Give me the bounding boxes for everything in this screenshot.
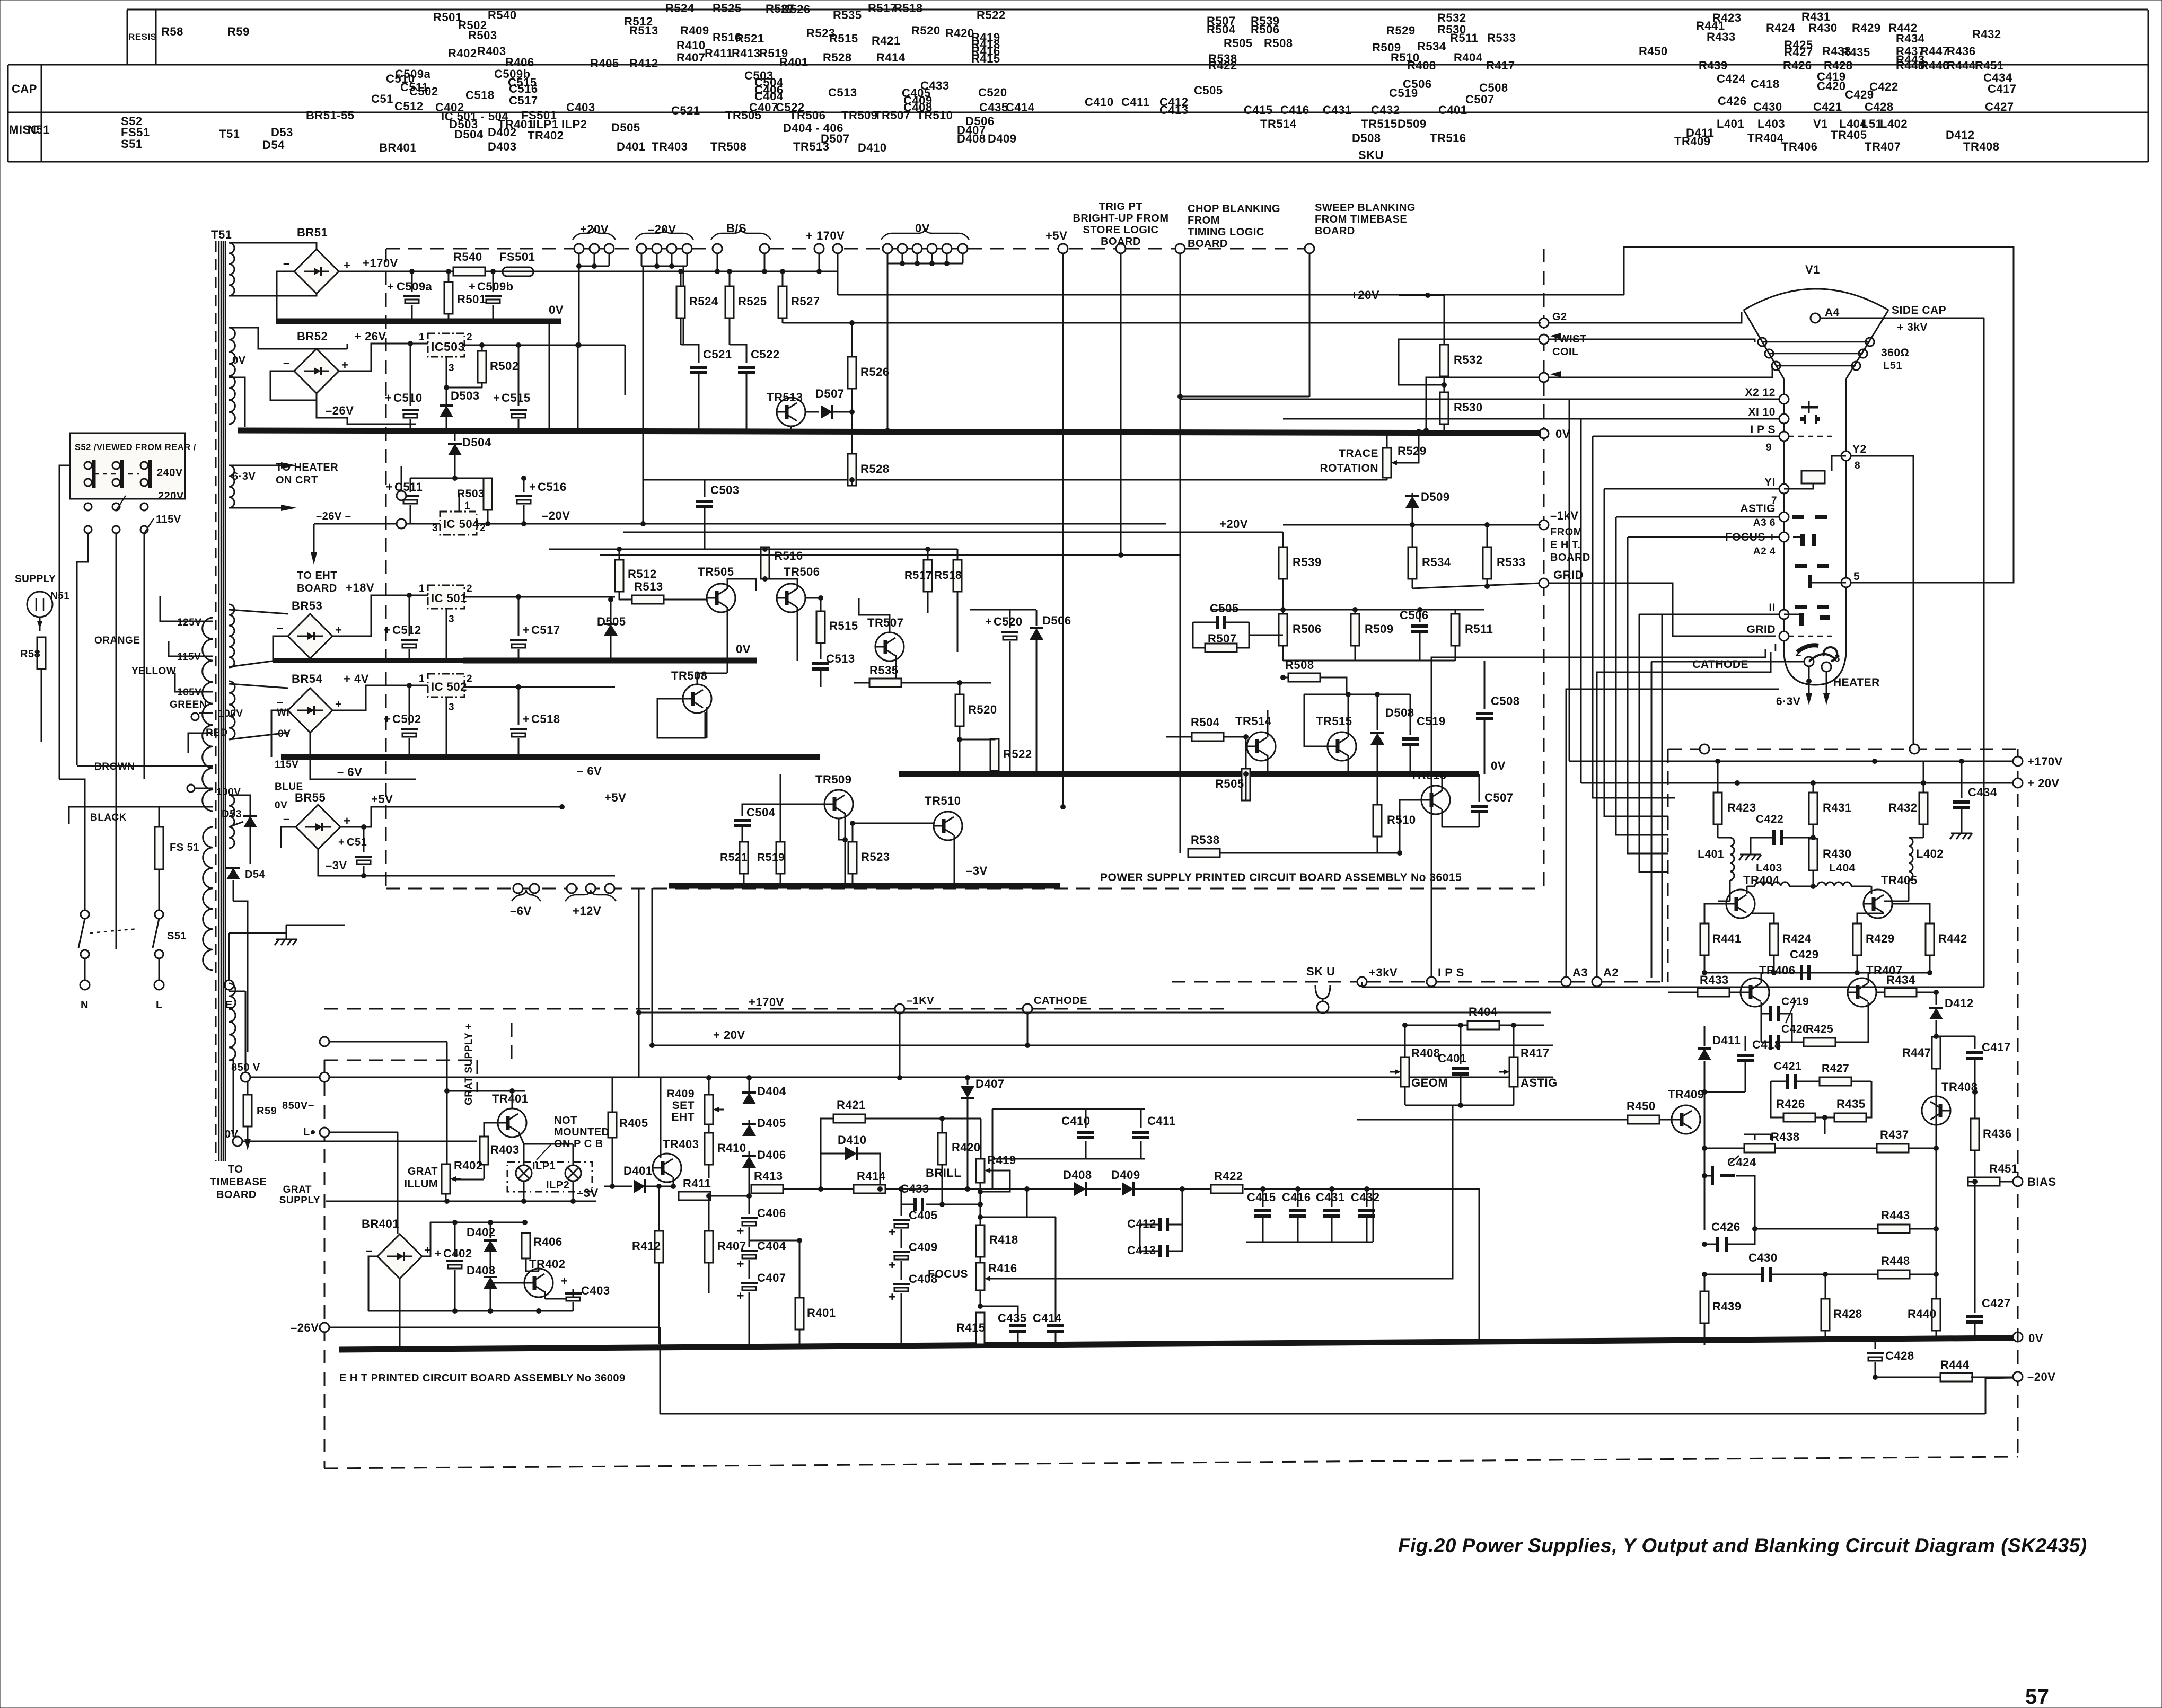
svg-text:BIAS: BIAS — [2027, 1175, 2056, 1188]
svg-text:L401: L401 — [1698, 848, 1724, 860]
svg-text:–20V: –20V — [542, 509, 570, 522]
svg-text:–3V: –3V — [577, 1186, 599, 1200]
svg-text:TR409: TR409 — [1674, 135, 1711, 148]
svg-text:+: + — [523, 623, 530, 637]
svg-text:–6V: –6V — [510, 904, 532, 918]
svg-text:ORANGE: ORANGE — [94, 635, 140, 646]
svg-text:R518: R518 — [934, 569, 962, 582]
svg-text:C416: C416 — [1280, 103, 1309, 117]
svg-text:R535: R535 — [833, 8, 862, 22]
svg-text:C413: C413 — [1159, 103, 1189, 117]
svg-text:C517: C517 — [531, 623, 560, 637]
svg-text:R436: R436 — [1983, 1127, 2012, 1140]
svg-text:I P S: I P S — [1750, 424, 1776, 436]
svg-text:C51: C51 — [347, 837, 367, 848]
svg-text:+: + — [341, 358, 348, 372]
svg-text:TR506: TR506 — [784, 565, 820, 578]
svg-text:R540: R540 — [453, 250, 482, 263]
svg-text:CATHODE: CATHODE — [1034, 995, 1087, 1007]
svg-text:C421: C421 — [1774, 1060, 1801, 1072]
svg-text:R529: R529 — [1386, 24, 1416, 37]
svg-text:R408: R408 — [1407, 59, 1436, 72]
svg-text:R448: R448 — [1881, 1254, 1910, 1267]
svg-text:R444: R444 — [1947, 59, 1976, 72]
svg-text:C502: C502 — [392, 712, 421, 726]
svg-text:ILP2: ILP2 — [561, 118, 587, 131]
svg-text:+: + — [737, 1257, 744, 1271]
svg-text:D54: D54 — [245, 869, 266, 881]
svg-text:+: + — [985, 615, 992, 628]
svg-text:R411: R411 — [705, 47, 733, 60]
svg-text:R504: R504 — [1191, 716, 1220, 729]
svg-text:0V: 0V — [1491, 759, 1506, 772]
svg-text:R451: R451 — [1975, 59, 2004, 72]
svg-text:R429: R429 — [1866, 932, 1895, 945]
svg-text:+20V: +20V — [580, 223, 609, 236]
svg-text:C431: C431 — [1316, 1191, 1345, 1204]
svg-text:R528: R528 — [860, 462, 890, 476]
svg-text:220V: 220V — [158, 490, 184, 502]
svg-text:–1kV: –1kV — [1550, 509, 1578, 522]
svg-text:R434: R434 — [1896, 32, 1925, 45]
svg-text:D505: D505 — [611, 121, 640, 134]
svg-text:R526: R526 — [781, 3, 811, 16]
svg-text:360Ω: 360Ω — [1881, 347, 1909, 359]
svg-text:D412: D412 — [1945, 997, 1974, 1010]
svg-text:R525: R525 — [738, 295, 767, 308]
svg-text:BOARD: BOARD — [216, 1189, 257, 1201]
svg-text:R403: R403 — [490, 1143, 520, 1156]
svg-text:C427: C427 — [1985, 100, 2014, 113]
svg-text:C504: C504 — [746, 806, 776, 819]
svg-text:R447: R447 — [1902, 1046, 1931, 1059]
svg-text:C502: C502 — [409, 85, 438, 98]
svg-text:R533: R533 — [1487, 31, 1516, 45]
svg-text:R401: R401 — [807, 1306, 836, 1319]
svg-text:+: + — [335, 623, 342, 637]
svg-text:ILP1: ILP1 — [532, 1160, 556, 1172]
svg-text:EHT: EHT — [672, 1111, 695, 1123]
svg-text:R419: R419 — [987, 1154, 1016, 1167]
svg-text:+12V: +12V — [573, 904, 601, 918]
svg-text:TR406: TR406 — [1759, 964, 1796, 977]
svg-text:R524: R524 — [689, 295, 718, 308]
svg-text:SKU: SKU — [1358, 148, 1384, 162]
svg-text:–: – — [283, 257, 290, 270]
svg-text:C415: C415 — [1244, 103, 1273, 117]
svg-text:–26V: –26V — [326, 404, 354, 417]
svg-text:C435: C435 — [979, 101, 1008, 114]
svg-text:R520: R520 — [968, 703, 997, 716]
svg-text:R521: R521 — [720, 851, 748, 864]
svg-text:TR514: TR514 — [1235, 715, 1272, 728]
svg-text:R438: R438 — [1771, 1130, 1800, 1143]
svg-text:R434: R434 — [1886, 973, 1915, 987]
svg-text:D504: D504 — [454, 128, 484, 141]
svg-text:+: + — [384, 623, 391, 637]
svg-text:C510: C510 — [393, 391, 423, 404]
svg-text:TR402: TR402 — [529, 1257, 566, 1271]
svg-text:C402: C402 — [443, 1247, 472, 1260]
svg-text:D53: D53 — [271, 126, 293, 139]
svg-text:R519: R519 — [757, 851, 785, 864]
svg-text:C509a: C509a — [397, 280, 433, 293]
svg-text:–: – — [283, 356, 290, 369]
svg-text:R440: R440 — [1920, 59, 1949, 72]
svg-text:R433: R433 — [1700, 973, 1729, 987]
svg-text:C517: C517 — [509, 94, 538, 107]
svg-text:C403: C403 — [566, 101, 595, 114]
svg-text:1: 1 — [419, 332, 425, 343]
svg-text:SK U: SK U — [1306, 965, 1335, 978]
svg-text:L402: L402 — [1880, 117, 1908, 130]
svg-text:R405: R405 — [590, 57, 619, 70]
svg-text:C411: C411 — [1121, 95, 1149, 109]
svg-text:115V: 115V — [156, 514, 181, 525]
svg-text:0V: 0V — [2028, 1332, 2043, 1345]
svg-text:TR407: TR407 — [1865, 140, 1901, 153]
svg-text:TR406: TR406 — [1781, 140, 1818, 153]
svg-text:+: + — [385, 391, 392, 404]
svg-text:6·3V: 6·3V — [1776, 695, 1800, 708]
svg-text:ILP2: ILP2 — [546, 1179, 569, 1191]
svg-text:R517: R517 — [868, 2, 897, 15]
svg-text:GEOM: GEOM — [1411, 1076, 1448, 1089]
svg-text:R430: R430 — [1808, 21, 1838, 34]
svg-text:C428: C428 — [1865, 100, 1894, 113]
svg-text:COIL: COIL — [1552, 346, 1579, 358]
svg-text:TR509: TR509 — [841, 109, 878, 122]
svg-text:NOT: NOT — [554, 1115, 577, 1126]
svg-text:R501: R501 — [457, 293, 486, 306]
svg-text:I: I — [1774, 642, 1777, 654]
svg-text:GRAT SUPPLY +: GRAT SUPPLY + — [463, 1023, 474, 1105]
svg-text:D509: D509 — [1421, 490, 1450, 504]
svg-text:125V: 125V — [177, 617, 201, 628]
svg-text:–3V: –3V — [966, 864, 988, 877]
svg-text:TR515: TR515 — [1316, 715, 1352, 728]
svg-text:C519: C519 — [1389, 86, 1418, 100]
svg-text:R415: R415 — [956, 1321, 986, 1334]
svg-text:0V: 0V — [1555, 427, 1570, 441]
svg-text:C403: C403 — [581, 1284, 610, 1297]
svg-text:C420: C420 — [1817, 80, 1846, 93]
svg-text:R540: R540 — [488, 8, 517, 22]
svg-text:GRAT: GRAT — [283, 1184, 312, 1195]
svg-text:+5V: +5V — [1045, 229, 1067, 242]
svg-text:C435: C435 — [998, 1311, 1027, 1325]
svg-text:R412: R412 — [629, 57, 658, 70]
svg-text:FROM: FROM — [1188, 215, 1220, 226]
svg-text:C414: C414 — [1006, 101, 1035, 114]
svg-text:R411: R411 — [683, 1177, 711, 1190]
svg-text:TR510: TR510 — [917, 109, 953, 122]
svg-text:R439: R439 — [1699, 59, 1728, 72]
svg-text:R522: R522 — [977, 8, 1006, 22]
svg-text:R421: R421 — [837, 1098, 866, 1112]
svg-text:100V: 100V — [218, 708, 243, 719]
svg-text:3: 3 — [449, 702, 454, 713]
svg-text:V1: V1 — [1805, 263, 1820, 276]
svg-text:A2 4: A2 4 — [1753, 546, 1776, 557]
svg-text:R511: R511 — [1465, 622, 1493, 636]
svg-text:FS501: FS501 — [499, 250, 535, 263]
svg-text:S52 /VIEWED FROM REAR /: S52 /VIEWED FROM REAR / — [75, 443, 196, 452]
svg-text:D54: D54 — [262, 138, 285, 152]
svg-text:SWEEP BLANKING: SWEEP BLANKING — [1315, 202, 1416, 214]
svg-text:C409: C409 — [909, 1240, 938, 1254]
svg-text:TR505: TR505 — [725, 109, 762, 122]
svg-text:R505: R505 — [1215, 777, 1244, 790]
svg-text:TR506: TR506 — [789, 109, 826, 122]
svg-text:C513: C513 — [828, 86, 857, 99]
svg-text:240V: 240V — [157, 467, 183, 479]
svg-text:R433: R433 — [1707, 30, 1736, 43]
svg-text:X2 12: X2 12 — [1745, 386, 1776, 399]
svg-text:C404: C404 — [757, 1239, 786, 1253]
svg-text:TR507: TR507 — [867, 616, 904, 629]
svg-text:SUPPLY: SUPPLY — [279, 1195, 320, 1206]
svg-text:BR54: BR54 — [292, 672, 323, 685]
svg-text:100V: 100V — [216, 787, 241, 798]
svg-text:C410: C410 — [1061, 1114, 1091, 1128]
svg-text:+: + — [889, 1258, 896, 1272]
svg-text:– 6V: – 6V — [577, 764, 602, 778]
svg-text:L: L — [303, 1126, 310, 1138]
svg-text:D402: D402 — [488, 126, 517, 139]
svg-text:R403: R403 — [477, 45, 506, 58]
svg-text:D411: D411 — [1712, 1034, 1741, 1047]
svg-text:D503: D503 — [451, 389, 480, 402]
svg-text:C520: C520 — [978, 86, 1007, 99]
svg-text:R510: R510 — [1387, 813, 1416, 826]
svg-text:R527: R527 — [791, 295, 820, 308]
svg-text:+: + — [737, 1224, 744, 1238]
svg-text:+3kV: +3kV — [1369, 966, 1398, 979]
svg-text:R441: R441 — [1712, 932, 1742, 945]
svg-text:TO: TO — [228, 1164, 243, 1175]
svg-text:R539: R539 — [1293, 556, 1322, 569]
svg-text:R427: R427 — [1784, 46, 1813, 59]
svg-text:ON CRT: ON CRT — [276, 474, 318, 486]
svg-text:R402: R402 — [448, 47, 477, 60]
svg-text:R509: R509 — [1365, 622, 1394, 636]
svg-text:R409: R409 — [667, 1088, 695, 1100]
svg-text:L: L — [156, 999, 163, 1011]
svg-text:R435: R435 — [1841, 46, 1870, 59]
svg-text:TR401: TR401 — [492, 1092, 529, 1105]
svg-text:+: + — [344, 814, 350, 827]
svg-text:R406: R406 — [533, 1235, 563, 1248]
svg-text:C515: C515 — [502, 391, 531, 404]
svg-text:D401: D401 — [617, 140, 646, 153]
svg-text:GRAT: GRAT — [408, 1166, 438, 1177]
svg-text:+: + — [889, 1225, 896, 1239]
svg-text:115V: 115V — [275, 759, 298, 770]
svg-text:TR510: TR510 — [925, 794, 961, 807]
svg-text:R430: R430 — [1823, 847, 1852, 860]
svg-text:+: + — [386, 480, 393, 494]
svg-text:R428: R428 — [1833, 1307, 1862, 1320]
svg-text:R534: R534 — [1417, 40, 1446, 53]
svg-text:R404: R404 — [1469, 1005, 1498, 1018]
svg-text:+: + — [561, 1274, 568, 1288]
svg-text:MOUNTED: MOUNTED — [554, 1126, 610, 1138]
svg-text:E: E — [225, 999, 233, 1011]
svg-text:C520: C520 — [994, 615, 1023, 628]
svg-text:R412: R412 — [632, 1239, 661, 1253]
svg-text:D405: D405 — [757, 1116, 786, 1130]
svg-text:C428: C428 — [1885, 1349, 1914, 1362]
svg-text:TR404: TR404 — [1743, 874, 1780, 887]
svg-text:BOARD: BOARD — [1101, 236, 1141, 248]
svg-text:C414: C414 — [1033, 1311, 1062, 1325]
svg-text:R439: R439 — [1712, 1300, 1742, 1313]
svg-text:+: + — [338, 837, 345, 848]
svg-text:–: – — [366, 1244, 373, 1257]
svg-text:L404: L404 — [1829, 862, 1856, 874]
svg-text:FROM: FROM — [1550, 526, 1583, 538]
svg-text:R422: R422 — [1214, 1169, 1243, 1183]
svg-text:C507: C507 — [1465, 93, 1495, 106]
svg-text:C420: C420 — [1781, 1023, 1809, 1035]
svg-text:C406: C406 — [757, 1207, 786, 1220]
svg-text:N51: N51 — [28, 123, 50, 136]
svg-text:+: + — [493, 391, 500, 404]
svg-text:IC 501: IC 501 — [431, 592, 467, 605]
svg-text:R528: R528 — [823, 51, 852, 64]
svg-text:BOARD: BOARD — [1550, 552, 1590, 564]
svg-text:YI: YI — [1764, 476, 1776, 488]
svg-text:BR51-55: BR51-55 — [306, 109, 355, 122]
svg-text:TR509: TR509 — [815, 773, 852, 786]
svg-text:C507: C507 — [1484, 791, 1514, 804]
svg-text:R504: R504 — [1207, 23, 1236, 36]
svg-text:TR505: TR505 — [698, 565, 734, 578]
svg-text:C522: C522 — [751, 348, 780, 361]
svg-text:R59: R59 — [227, 25, 250, 38]
svg-text:R508: R508 — [1285, 658, 1314, 672]
svg-text:R450: R450 — [1627, 1099, 1656, 1113]
svg-text:+: + — [384, 712, 391, 726]
svg-text:R437: R437 — [1880, 1128, 1909, 1141]
svg-text:C505: C505 — [1194, 84, 1223, 97]
svg-text:2: 2 — [467, 332, 472, 343]
svg-text:R427: R427 — [1822, 1062, 1849, 1075]
svg-text:C426: C426 — [1718, 94, 1747, 108]
svg-text:R414: R414 — [876, 51, 906, 64]
svg-text:TIMING LOGIC: TIMING LOGIC — [1188, 226, 1264, 238]
svg-text:+18V: +18V — [346, 581, 374, 594]
svg-text:FS 51: FS 51 — [170, 842, 199, 853]
svg-text:C401: C401 — [1438, 103, 1467, 117]
svg-text:TR405: TR405 — [1881, 874, 1918, 887]
svg-text:D403: D403 — [488, 140, 517, 153]
svg-text:R423: R423 — [1727, 801, 1756, 814]
svg-text:C432: C432 — [1351, 1191, 1380, 1204]
svg-text:TRACE: TRACE — [1339, 447, 1378, 460]
svg-text:TR402: TR402 — [528, 129, 564, 142]
svg-text:R534: R534 — [1422, 556, 1451, 569]
svg-text:R530: R530 — [1454, 401, 1483, 414]
svg-text:R435: R435 — [1836, 1097, 1866, 1111]
svg-text:R407: R407 — [676, 51, 706, 64]
svg-text:D410: D410 — [838, 1133, 867, 1147]
svg-text:FOCUS: FOCUS — [928, 1268, 968, 1280]
svg-text:T51: T51 — [211, 228, 232, 241]
svg-text:R443: R443 — [1881, 1209, 1910, 1222]
svg-text:850V~: 850V~ — [282, 1100, 314, 1112]
svg-text:57: 57 — [2025, 1685, 2050, 1708]
svg-text:R415: R415 — [971, 52, 1000, 65]
svg-text:R418: R418 — [989, 1233, 1018, 1246]
svg-text:+: + — [435, 1247, 442, 1260]
svg-text:C521: C521 — [703, 348, 732, 361]
svg-text:B/S: B/S — [726, 222, 746, 235]
svg-text:TO HEATER: TO HEATER — [276, 462, 338, 473]
svg-text:L401: L401 — [1717, 117, 1744, 130]
svg-text:TR514: TR514 — [1260, 117, 1297, 130]
svg-text:S51: S51 — [121, 137, 143, 151]
svg-text:D507: D507 — [815, 387, 845, 400]
svg-text:C427: C427 — [1982, 1297, 2011, 1310]
svg-text:R429: R429 — [1852, 21, 1881, 34]
svg-text:Fig.20 Power Supplies, Y Outp: Fig.20 Power Supplies, Y Output and Blan… — [1398, 1535, 2087, 1556]
svg-text:C505: C505 — [1210, 602, 1239, 615]
svg-text:R506: R506 — [1293, 622, 1322, 636]
svg-text:R426: R426 — [1776, 1097, 1805, 1111]
svg-text:HEATER: HEATER — [1833, 676, 1880, 689]
svg-text:+: + — [344, 259, 350, 272]
svg-text:C405: C405 — [909, 1209, 938, 1222]
svg-text:+ 20V: + 20V — [713, 1028, 745, 1042]
svg-text:TR409: TR409 — [1668, 1088, 1704, 1101]
svg-text:6·3V: 6·3V — [232, 471, 256, 482]
svg-text:C422: C422 — [1756, 813, 1783, 825]
svg-text:R526: R526 — [860, 365, 890, 378]
svg-text:TR508: TR508 — [671, 669, 708, 682]
svg-text:C521: C521 — [671, 104, 700, 117]
svg-text:R422: R422 — [1208, 59, 1237, 72]
svg-text:SET: SET — [672, 1099, 695, 1112]
svg-text:R417: R417 — [1521, 1046, 1550, 1060]
svg-text:C407: C407 — [757, 1271, 786, 1284]
svg-text:TIMEBASE: TIMEBASE — [210, 1176, 267, 1188]
svg-text:+ 3kV: + 3kV — [1897, 321, 1928, 333]
svg-text:A3 6: A3 6 — [1753, 517, 1776, 529]
svg-text:IC 502: IC 502 — [431, 680, 467, 693]
svg-text:R413: R413 — [754, 1169, 783, 1183]
svg-text:C431: C431 — [1323, 103, 1352, 117]
svg-text:–: – — [283, 812, 290, 825]
svg-text:D505: D505 — [597, 615, 626, 628]
svg-text:+: + — [335, 698, 342, 711]
svg-text:R405: R405 — [619, 1116, 648, 1130]
svg-text:C429: C429 — [1845, 88, 1874, 101]
svg-text:R442: R442 — [1938, 932, 1967, 945]
svg-text:C415: C415 — [1247, 1191, 1276, 1204]
svg-text:BR53: BR53 — [292, 599, 322, 612]
svg-text:C411: C411 — [1147, 1114, 1175, 1128]
svg-text:C418: C418 — [1752, 1038, 1781, 1051]
svg-text:–26V –: –26V – — [316, 510, 351, 522]
svg-text:R523: R523 — [861, 850, 890, 864]
svg-text:3: 3 — [449, 363, 454, 374]
svg-text:R417: R417 — [1486, 59, 1515, 72]
svg-text:R432: R432 — [1972, 28, 2001, 41]
svg-text:+5V: +5V — [604, 791, 626, 804]
svg-text:GREEN: GREEN — [170, 699, 207, 710]
